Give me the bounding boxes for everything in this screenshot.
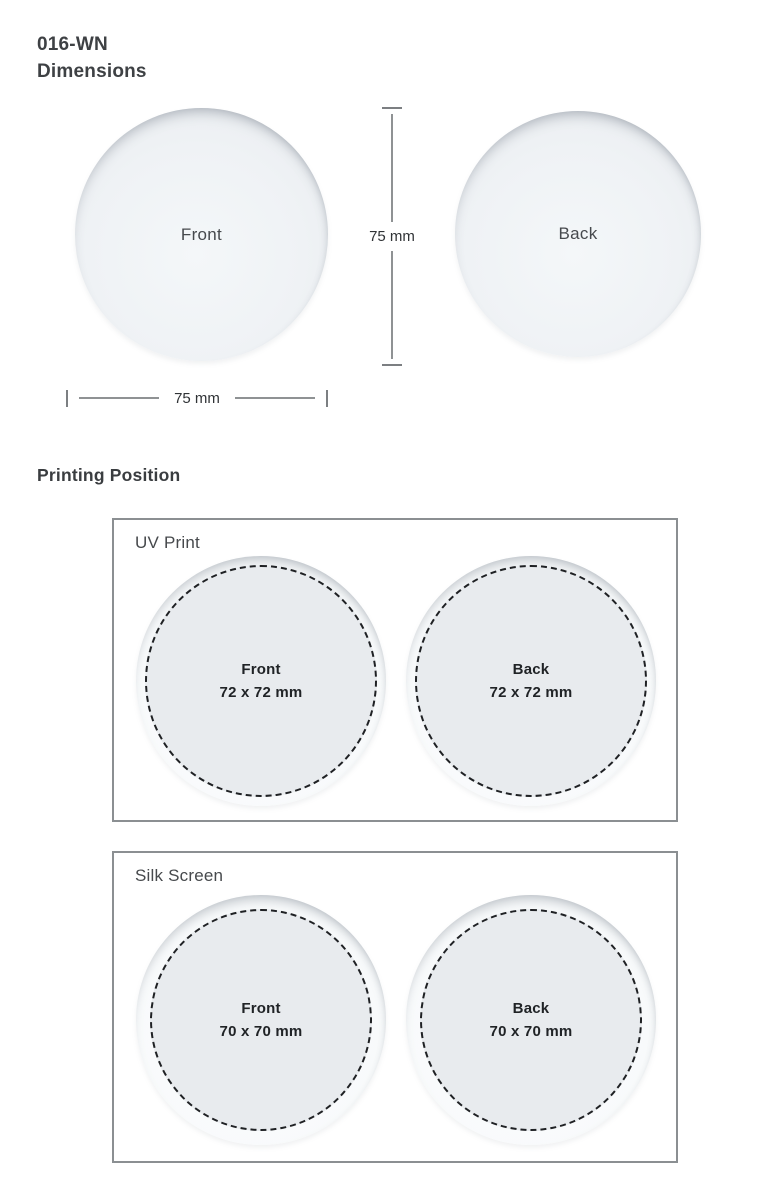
doc-header: 016-WN Dimensions (37, 31, 147, 85)
silk-screen-panel: Silk Screen Front 70 x 70 mm Back 70 x 7… (112, 851, 678, 1163)
width-dimension: 75 mm (66, 388, 328, 408)
dimension-tick-right (326, 390, 328, 407)
dimension-tick-bottom (382, 364, 402, 366)
silk-screen-panel-title: Silk Screen (135, 866, 223, 886)
uv-print-panel-title: UV Print (135, 533, 200, 553)
product-code: 016-WN (37, 31, 147, 58)
uv-front-label: Front (241, 660, 280, 680)
silk-back-label: Back (513, 999, 550, 1019)
printing-position-heading: Printing Position (37, 465, 180, 486)
uv-print-panel: UV Print Front 72 x 72 mm Back 72 x 72 m… (112, 518, 678, 822)
uv-back-disc: Back 72 x 72 mm (406, 556, 656, 806)
height-dimension-label: 75 mm (369, 228, 415, 245)
uv-back-size: 72 x 72 mm (490, 683, 573, 703)
dimension-line-right (235, 397, 315, 399)
back-disc-label: Back (559, 224, 598, 244)
dimension-line-left (79, 397, 159, 399)
uv-back-print-area: Back 72 x 72 mm (415, 565, 647, 797)
dimension-line-lower (391, 251, 393, 359)
dimension-tick-top (382, 107, 402, 109)
front-disc-label: Front (181, 225, 222, 245)
silk-front-print-area: Front 70 x 70 mm (150, 909, 372, 1131)
front-disc: Front (75, 108, 328, 361)
uv-back-label: Back (513, 660, 550, 680)
uv-front-size: 72 x 72 mm (220, 683, 303, 703)
uv-front-print-area: Front 72 x 72 mm (145, 565, 377, 797)
dimension-line-upper (391, 114, 393, 222)
dimensions-section-title: Dimensions (37, 58, 147, 85)
silk-front-label: Front (241, 999, 280, 1019)
dimension-tick-left (66, 390, 68, 407)
silk-back-print-area: Back 70 x 70 mm (420, 909, 642, 1131)
height-dimension: 75 mm (362, 107, 422, 366)
silk-front-disc: Front 70 x 70 mm (136, 895, 386, 1145)
spec-sheet-page: 016-WN Dimensions Front Back 75 mm 75 mm… (0, 0, 768, 1203)
width-dimension-label: 75 mm (174, 390, 220, 407)
uv-front-disc: Front 72 x 72 mm (136, 556, 386, 806)
silk-back-size: 70 x 70 mm (490, 1022, 573, 1042)
back-disc: Back (455, 111, 701, 357)
silk-front-size: 70 x 70 mm (220, 1022, 303, 1042)
silk-back-disc: Back 70 x 70 mm (406, 895, 656, 1145)
